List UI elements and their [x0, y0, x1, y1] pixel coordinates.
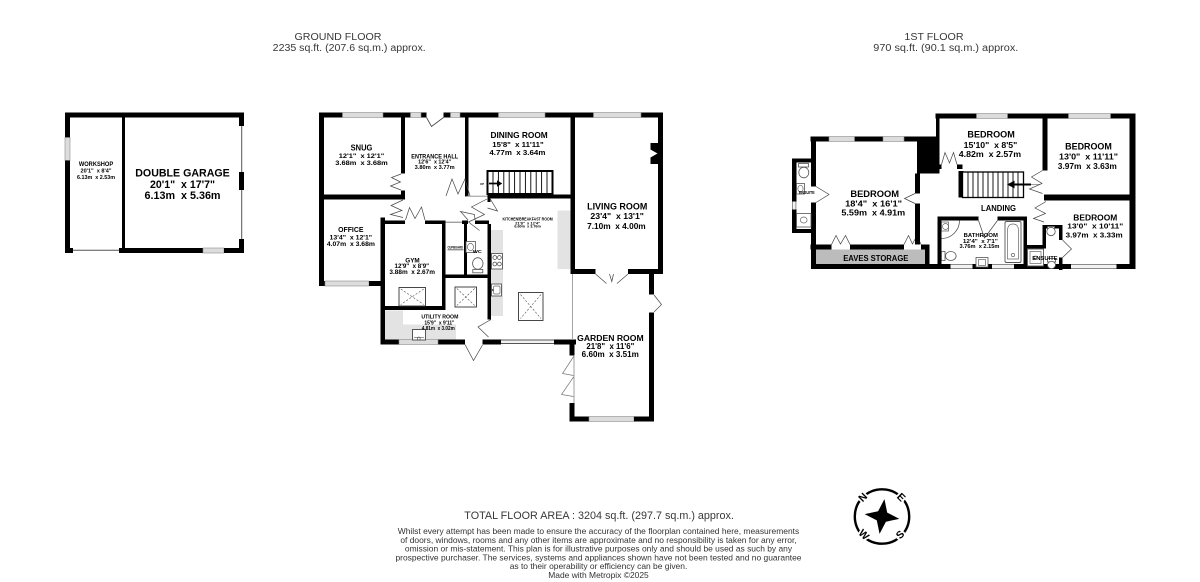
- svg-text:3.80m x 3.77m: 3.80m x 3.77m: [415, 165, 455, 171]
- svg-text:TOTAL FLOOR AREA : 3204 sq.ft.: TOTAL FLOOR AREA : 3204 sq.ft. (297.7 sq…: [464, 510, 734, 522]
- svg-text:12'1" x 12'1": 12'1" x 12'1": [339, 153, 385, 160]
- svg-text:3.76m x 2.15m: 3.76m x 2.15m: [960, 244, 1000, 250]
- svg-text:4.77m x 3.64m: 4.77m x 3.64m: [489, 148, 545, 157]
- svg-text:3.68m x 3.68m: 3.68m x 3.68m: [335, 160, 388, 167]
- svg-text:DOUBLE GARAGE: DOUBLE GARAGE: [135, 168, 230, 180]
- svg-text:LANDING: LANDING: [981, 203, 1016, 213]
- svg-text:23'4" x 13'1": 23'4" x 13'1": [590, 212, 644, 221]
- svg-text:SNUG: SNUG: [351, 144, 373, 153]
- svg-text:3.97m x 3.63m: 3.97m x 3.63m: [1058, 162, 1117, 171]
- svg-text:OFFICE: OFFICE: [338, 227, 364, 234]
- svg-text:LIVING ROOM: LIVING ROOM: [587, 201, 647, 211]
- svg-text:Made with Metropix ©2025: Made with Metropix ©2025: [548, 570, 649, 580]
- svg-text:ENSUITE: ENSUITE: [1032, 256, 1058, 262]
- svg-text:GROUND FLOOR: GROUND FLOOR: [295, 32, 382, 43]
- svg-text:4.07m x 3.68m: 4.07m x 3.68m: [327, 241, 375, 248]
- svg-text:6.60m x 3.76m: 6.60m x 3.76m: [514, 224, 541, 229]
- svg-text:3.97m x 3.33m: 3.97m x 3.33m: [1066, 231, 1123, 240]
- svg-text:20'1" x 8'4": 20'1" x 8'4": [81, 169, 112, 175]
- svg-text:DINING ROOM: DINING ROOM: [491, 130, 548, 140]
- svg-text:EAVES STORAGE: EAVES STORAGE: [843, 253, 908, 263]
- svg-text:5.59m x 4.91m: 5.59m x 4.91m: [841, 207, 905, 217]
- svg-text:3.88m x 2.67m: 3.88m x 2.67m: [389, 270, 435, 276]
- svg-text:2235 sq.ft. (207.6 sq.m.) appr: 2235 sq.ft. (207.6 sq.m.) approx.: [273, 43, 426, 54]
- svg-text:1ST FLOOR: 1ST FLOOR: [904, 32, 963, 43]
- svg-text:BEDROOM: BEDROOM: [967, 129, 1015, 139]
- svg-text:13'0" x 11'11": 13'0" x 11'11": [1059, 152, 1118, 161]
- svg-text:WC: WC: [473, 249, 483, 255]
- svg-text:7.10m x 4.00m: 7.10m x 4.00m: [587, 222, 646, 231]
- svg-text:20'1" x 17'7": 20'1" x 17'7": [150, 179, 215, 191]
- svg-text:4.82m x 2.57m: 4.82m x 2.57m: [959, 149, 1021, 159]
- svg-text:13'0" x 10'11": 13'0" x 10'11": [1067, 222, 1123, 231]
- svg-text:4.81m x 3.02m: 4.81m x 3.02m: [422, 326, 456, 332]
- svg-text:UP: UP: [480, 182, 484, 186]
- svg-text:6.13m x 2.53m: 6.13m x 2.53m: [77, 175, 115, 181]
- svg-text:970 sq.ft. (90.1 sq.m.) approx: 970 sq.ft. (90.1 sq.m.) approx.: [873, 43, 1018, 54]
- svg-text:BEDROOM: BEDROOM: [1065, 142, 1112, 152]
- svg-text:ENSUITE: ENSUITE: [799, 190, 815, 195]
- svg-text:CUPBOARD: CUPBOARD: [447, 246, 463, 250]
- svg-text:6.60m x 3.51m: 6.60m x 3.51m: [582, 350, 639, 359]
- svg-text:BATHROOM: BATHROOM: [964, 233, 998, 239]
- svg-text:6.13m x 5.36m: 6.13m x 5.36m: [145, 190, 221, 202]
- svg-text:WORKSHOP: WORKSHOP: [79, 161, 113, 168]
